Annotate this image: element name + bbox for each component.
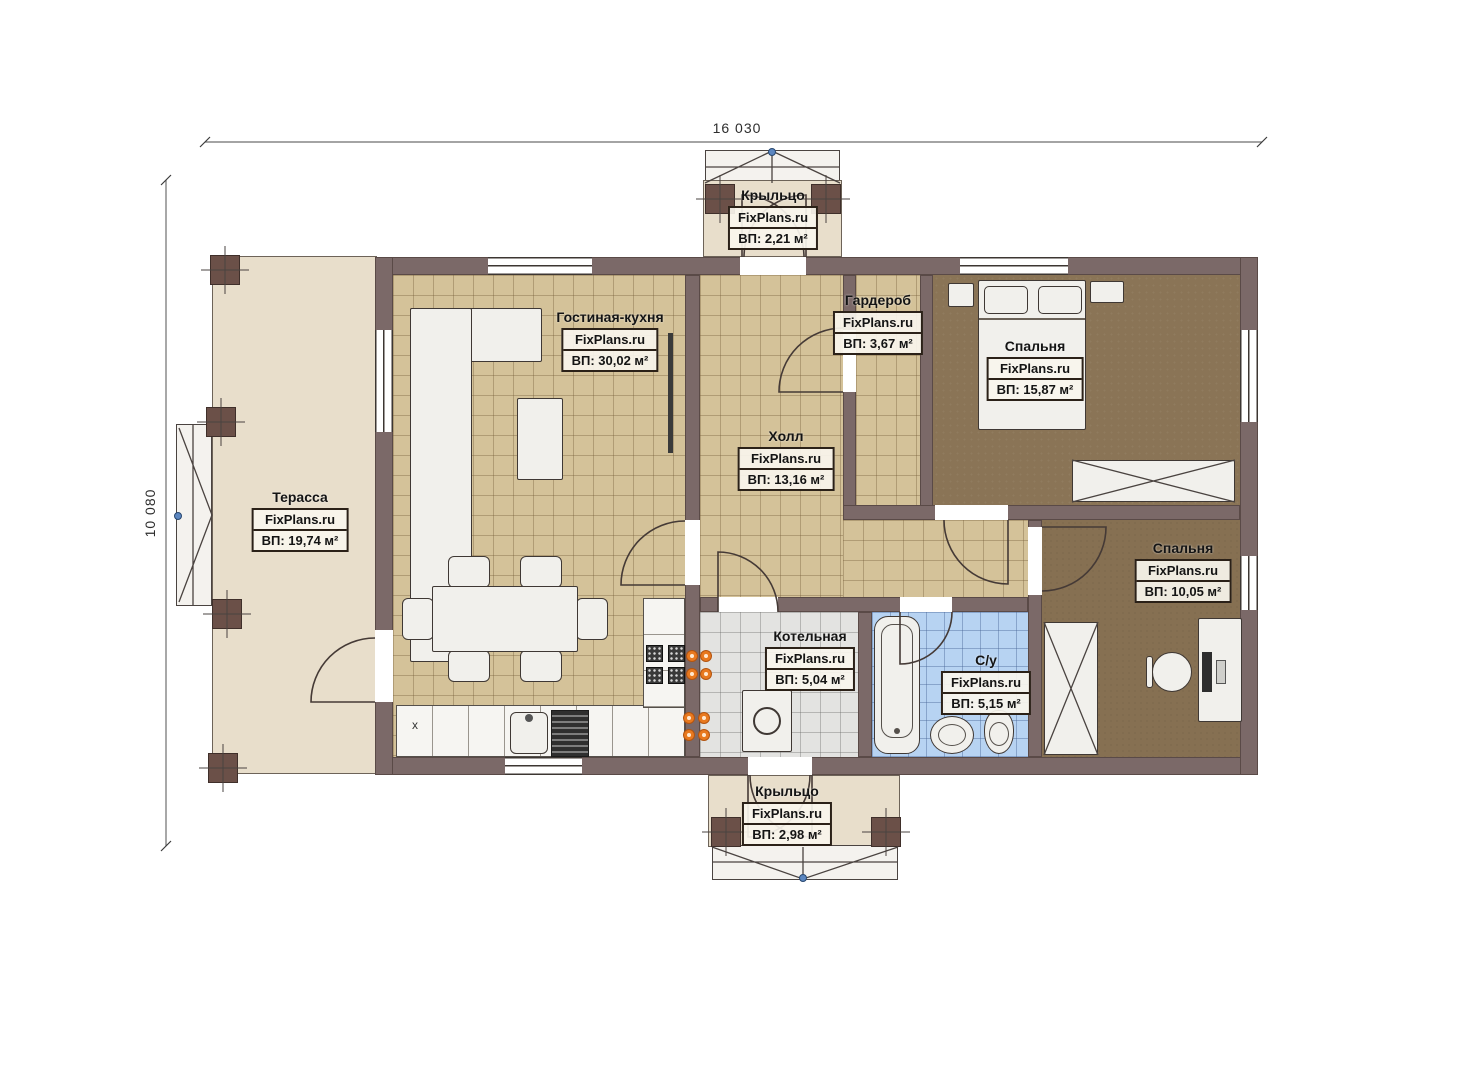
stove-burner-block (646, 667, 663, 684)
stove-burner-block (646, 645, 663, 662)
nightstand (1090, 281, 1124, 303)
area-label: ВП: 5,04 м² (767, 670, 853, 689)
room-label-porch-bottom: Крыльцо FixPlans.ru ВП: 2,98 м² (742, 783, 832, 846)
nightstand (948, 283, 974, 307)
dining-chair (576, 598, 608, 640)
wall-living-hall (685, 275, 700, 757)
brand-label: FixPlans.ru (740, 449, 833, 470)
brand-label: FixPlans.ru (943, 673, 1029, 694)
dining-chair (402, 598, 434, 640)
room-info-box: FixPlans.ru ВП: 13,16 м² (738, 447, 835, 491)
survey-marker (799, 874, 807, 882)
porch-bottom-post (871, 817, 901, 847)
room-info-box: FixPlans.ru ВП: 5,04 м² (765, 647, 855, 691)
room-label-bedroom-1: Спальня FixPlans.ru ВП: 15,87 м² (987, 338, 1084, 401)
survey-marker (174, 512, 182, 520)
room-name: Крыльцо (728, 187, 818, 203)
window-living-left (375, 330, 393, 432)
brand-label: FixPlans.ru (767, 649, 853, 670)
room-name: Гостиная-кухня (556, 309, 663, 325)
room-info-box: FixPlans.ru ВП: 30,02 м² (562, 328, 659, 372)
porch-bottom-post (711, 817, 741, 847)
area-label: ВП: 10,05 м² (1137, 582, 1230, 601)
room-label-wardrobe: Гардероб FixPlans.ru ВП: 3,67 м² (833, 292, 923, 355)
room-name: Холл (738, 428, 835, 444)
window-living-top (488, 257, 592, 275)
dining-chair (448, 650, 490, 682)
room-info-box: FixPlans.ru ВП: 10,05 м² (1135, 559, 1232, 603)
dining-table (432, 586, 578, 652)
dining-chair (448, 556, 490, 588)
room-name: Котельная (765, 628, 855, 644)
window-kitchen-bottom (505, 757, 582, 775)
brand-label: FixPlans.ru (730, 208, 816, 229)
toilet-seat (989, 722, 1009, 746)
stove-flame-icon (684, 713, 694, 723)
room-name: Терасса (252, 489, 349, 505)
survey-marker (768, 148, 776, 156)
terrace-post (212, 599, 242, 629)
desk-keyboard (1216, 660, 1226, 684)
area-label: ВП: 2,98 м² (744, 825, 830, 844)
stove-flame-icon (687, 651, 697, 661)
window-bedroom1-top (960, 257, 1068, 275)
window-bedroom2-right (1240, 556, 1258, 610)
room-name: Спальня (987, 338, 1084, 354)
area-label: ВП: 15,87 м² (989, 380, 1082, 399)
door-opening-bedroom1 (935, 505, 1008, 520)
stove-burner-block (668, 667, 685, 684)
dining-chair (520, 650, 562, 682)
terrace-post (206, 407, 236, 437)
washing-machine-door (753, 707, 781, 735)
brand-label: FixPlans.ru (254, 510, 347, 531)
stove-flame-icon (699, 730, 709, 740)
office-chair (1152, 652, 1192, 692)
dining-chair (520, 556, 562, 588)
brand-label: FixPlans.ru (989, 359, 1082, 380)
wardrobe-cabinet-bedroom1 (1072, 460, 1235, 502)
area-label: ВП: 19,74 м² (254, 531, 347, 550)
door-opening-front (740, 257, 806, 275)
room-label-hall: Холл FixPlans.ru ВП: 13,16 м² (738, 428, 835, 491)
room-info-box: FixPlans.ru ВП: 5,15 м² (941, 671, 1031, 715)
brand-label: FixPlans.ru (835, 313, 921, 334)
door-opening-bedroom2 (1028, 527, 1042, 595)
tv-unit (668, 333, 673, 453)
wardrobe-cabinet-bedroom2 (1044, 622, 1098, 755)
stove-flame-icon (701, 651, 711, 661)
dishwasher (551, 710, 589, 757)
wall-boiler-bath (858, 612, 872, 757)
room-name: Гардероб (833, 292, 923, 308)
terrace-post (208, 753, 238, 783)
area-label: ВП: 2,21 м² (730, 229, 816, 248)
coffee-table (517, 398, 563, 480)
stove-flame-icon (687, 669, 697, 679)
monitor (1202, 652, 1212, 692)
room-label-terrace: Терасса FixPlans.ru ВП: 19,74 м² (252, 489, 349, 552)
door-opening-boiler (718, 597, 778, 612)
terrace-post (210, 255, 240, 285)
room-label-living-kitchen: Гостиная-кухня FixPlans.ru ВП: 30,02 м² (556, 309, 663, 372)
bed-pillow (1038, 286, 1082, 314)
room-label-boiler: Котельная FixPlans.ru ВП: 5,04 м² (765, 628, 855, 691)
area-label: ВП: 13,16 м² (740, 470, 833, 489)
door-opening-bathroom (900, 597, 952, 612)
room-info-box: FixPlans.ru ВП: 15,87 м² (987, 357, 1084, 401)
wall-bedroom1-south (843, 505, 1240, 520)
stove-flame-icon (701, 669, 711, 679)
door-opening-living-hall (685, 520, 700, 585)
room-info-box: FixPlans.ru ВП: 2,98 м² (742, 802, 832, 846)
brand-label: FixPlans.ru (1137, 561, 1230, 582)
dimension-height-label: 10 080 (142, 489, 158, 538)
bed-pillow (984, 286, 1028, 314)
room-label-porch-top: Крыльцо FixPlans.ru ВП: 2,21 м² (728, 187, 818, 250)
room-info-box: FixPlans.ru ВП: 19,74 м² (252, 508, 349, 552)
area-label: ВП: 5,15 м² (943, 694, 1029, 713)
kitchen-cabinet-mark: x (412, 718, 418, 732)
room-label-bathroom: С/у FixPlans.ru ВП: 5,15 м² (941, 652, 1031, 715)
stove-burner-block (668, 645, 685, 662)
room-info-box: FixPlans.ru ВП: 3,67 м² (833, 311, 923, 355)
bed-blanket-line (979, 318, 1085, 320)
floorplan-canvas: 16 030 10 080 (0, 0, 1473, 1080)
room-label-bedroom-2: Спальня FixPlans.ru ВП: 10,05 м² (1135, 540, 1232, 603)
brand-label: FixPlans.ru (744, 804, 830, 825)
dimension-width-label: 16 030 (713, 120, 762, 136)
brand-label: FixPlans.ru (564, 330, 657, 351)
floor-corridor (843, 520, 1028, 597)
bathroom-sink-basin (938, 724, 966, 746)
door-opening-terrace (375, 630, 393, 702)
bathtub-basin (881, 624, 913, 738)
area-label: ВП: 3,67 м² (835, 334, 921, 353)
door-opening-back (748, 757, 812, 775)
room-name: Крыльцо (742, 783, 832, 799)
bathtub-drain (894, 728, 900, 734)
room-info-box: FixPlans.ru ВП: 2,21 м² (728, 206, 818, 250)
kitchen-faucet (525, 714, 533, 722)
window-bedroom1-right (1240, 330, 1258, 422)
room-name: Спальня (1135, 540, 1232, 556)
room-name: С/у (941, 652, 1031, 668)
stove-flame-icon (684, 730, 694, 740)
stove-flame-icon (699, 713, 709, 723)
area-label: ВП: 30,02 м² (564, 351, 657, 370)
office-chair-back (1146, 656, 1153, 688)
